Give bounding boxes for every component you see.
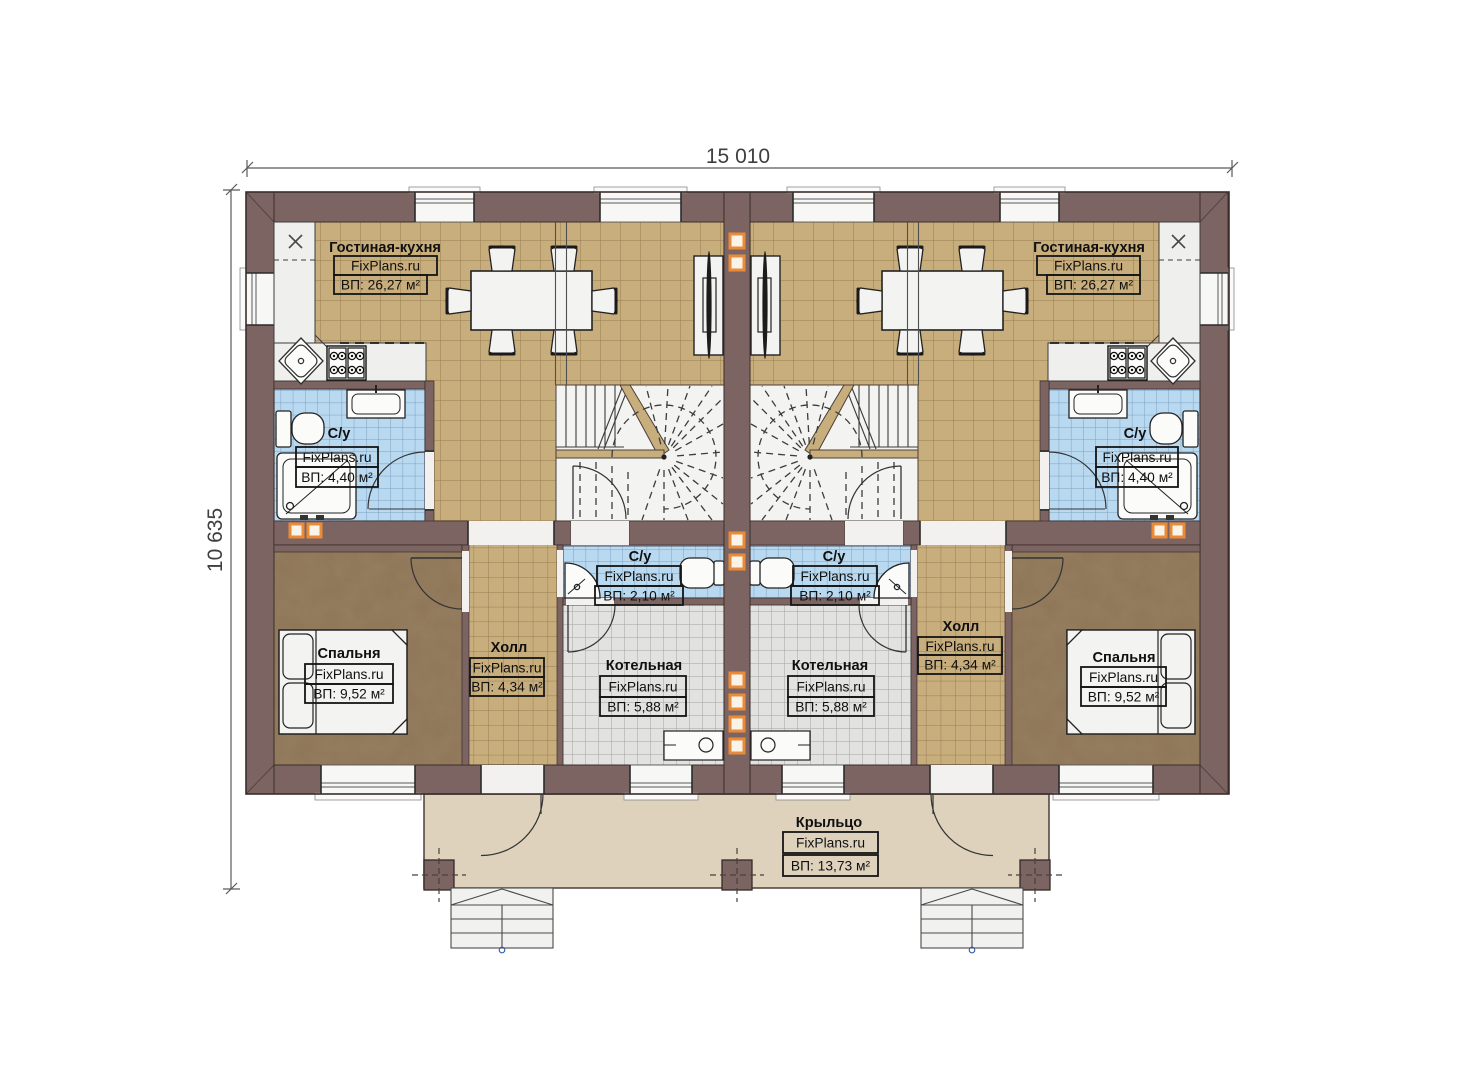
svg-text:С/у: С/у	[823, 549, 847, 565]
svg-text:ВП: 26,27 м²: ВП: 26,27 м²	[341, 278, 421, 293]
svg-text:FixPlans.ru: FixPlans.ru	[800, 569, 869, 584]
svg-text:FixPlans.ru: FixPlans.ru	[472, 661, 541, 676]
svg-text:FixPlans.ru: FixPlans.ru	[1102, 450, 1171, 465]
svg-text:С/у: С/у	[629, 549, 653, 565]
svg-text:15 010: 15 010	[706, 145, 770, 168]
svg-text:10 635: 10 635	[204, 508, 227, 572]
svg-text:FixPlans.ru: FixPlans.ru	[1054, 259, 1123, 274]
svg-text:ВП: 26,27 м²: ВП: 26,27 м²	[1054, 278, 1134, 293]
svg-text:FixPlans.ru: FixPlans.ru	[351, 259, 420, 274]
svg-text:ВП: 9,52 м²: ВП: 9,52 м²	[313, 687, 385, 702]
svg-text:С/у: С/у	[1124, 426, 1148, 442]
svg-text:Котельная: Котельная	[792, 658, 868, 674]
svg-text:ВП: 5,88 м²: ВП: 5,88 м²	[795, 700, 867, 715]
svg-text:ВП: 4,40 м²: ВП: 4,40 м²	[1101, 470, 1173, 485]
svg-text:FixPlans.ru: FixPlans.ru	[925, 639, 994, 654]
svg-text:Холл: Холл	[491, 640, 528, 656]
svg-text:ВП: 5,88 м²: ВП: 5,88 м²	[607, 700, 679, 715]
svg-text:ВП: 9,52 м²: ВП: 9,52 м²	[1088, 690, 1160, 705]
svg-text:Крыльцо: Крыльцо	[796, 815, 862, 831]
svg-text:FixPlans.ru: FixPlans.ru	[314, 667, 383, 682]
svg-text:Спальня: Спальня	[1092, 650, 1155, 666]
svg-text:Гостиная-кухня: Гостиная-кухня	[329, 240, 441, 256]
svg-text:FixPlans.ru: FixPlans.ru	[604, 569, 673, 584]
svg-text:ВП: 2,10 м²: ВП: 2,10 м²	[603, 589, 675, 604]
svg-text:ВП: 2,10 м²: ВП: 2,10 м²	[799, 589, 871, 604]
svg-text:С/у: С/у	[328, 426, 352, 442]
svg-text:FixPlans.ru: FixPlans.ru	[796, 680, 865, 695]
svg-text:FixPlans.ru: FixPlans.ru	[302, 450, 371, 465]
svg-text:Холл: Холл	[943, 619, 980, 635]
svg-text:Гостиная-кухня: Гостиная-кухня	[1033, 240, 1145, 256]
svg-text:Спальня: Спальня	[317, 646, 380, 662]
svg-text:ВП: 4,34 м²: ВП: 4,34 м²	[924, 658, 996, 673]
svg-text:FixPlans.ru: FixPlans.ru	[608, 680, 677, 695]
svg-text:ВП: 4,34 м²: ВП: 4,34 м²	[471, 680, 543, 695]
svg-text:FixPlans.ru: FixPlans.ru	[1089, 670, 1158, 685]
svg-text:ВП: 13,73 м²: ВП: 13,73 м²	[791, 859, 871, 874]
svg-text:FixPlans.ru: FixPlans.ru	[796, 836, 865, 851]
svg-text:Котельная: Котельная	[606, 658, 682, 674]
svg-text:ВП: 4,40 м²: ВП: 4,40 м²	[301, 470, 373, 485]
